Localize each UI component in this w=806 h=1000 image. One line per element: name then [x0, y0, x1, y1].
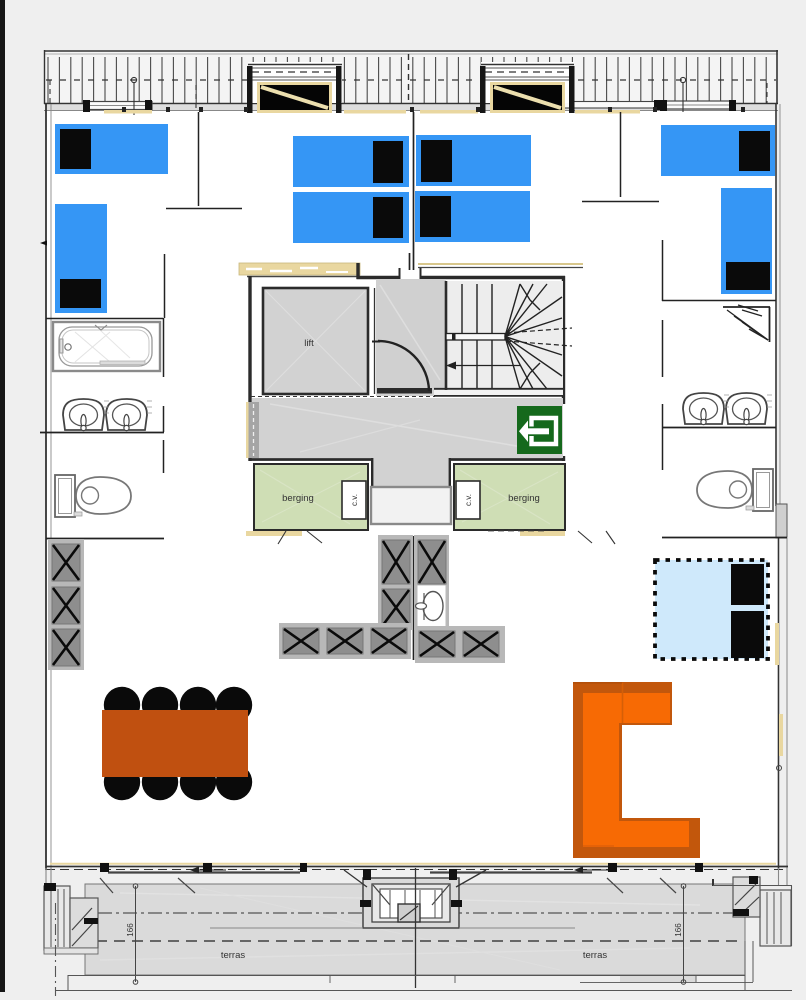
svg-text:lift: lift	[304, 338, 314, 349]
svg-text:c.v.: c.v.	[350, 494, 359, 506]
svg-text:c.v.: c.v.	[464, 494, 473, 506]
svg-text:berging: berging	[282, 493, 314, 504]
svg-text:terras: terras	[583, 950, 608, 961]
svg-text:terras: terras	[221, 950, 246, 961]
svg-text:166: 166	[126, 923, 135, 937]
svg-text:berging: berging	[508, 493, 540, 504]
svg-text:166: 166	[674, 923, 683, 937]
